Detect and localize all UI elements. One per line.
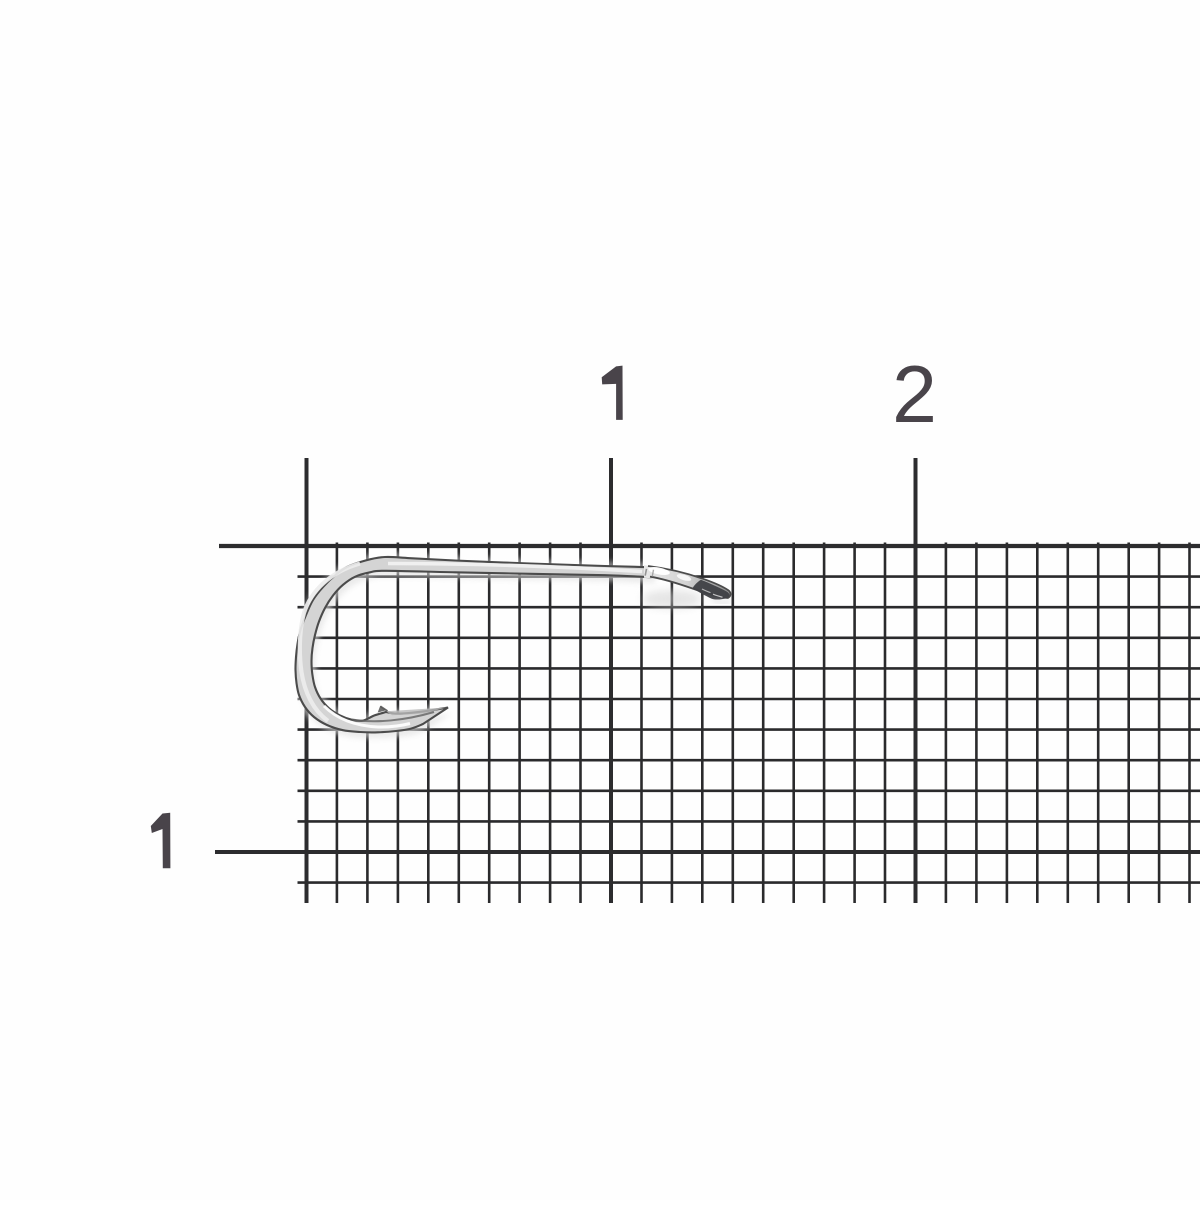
svg-text:2: 2 bbox=[892, 350, 937, 440]
